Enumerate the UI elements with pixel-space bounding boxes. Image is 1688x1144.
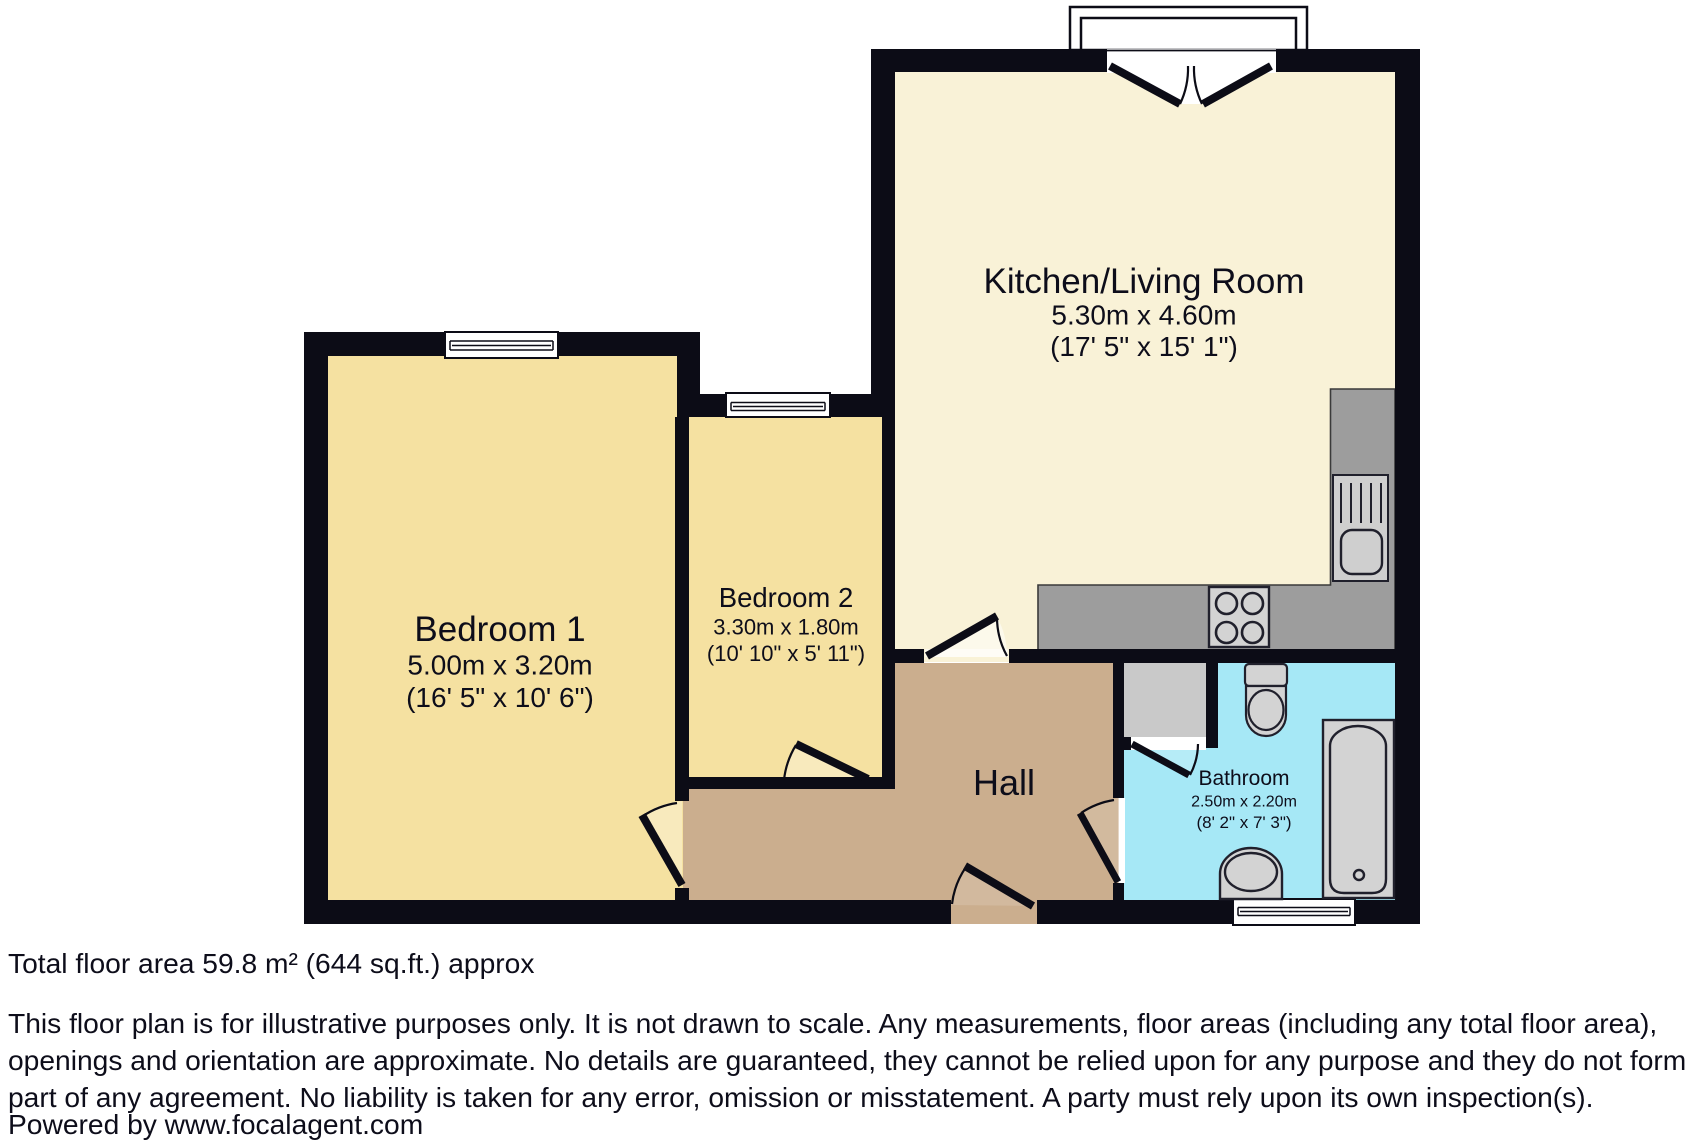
svg-text:5.00m x 3.20m: 5.00m x 3.20m xyxy=(407,650,592,681)
svg-text:Bedroom 2: Bedroom 2 xyxy=(719,582,854,613)
svg-text:3.30m x 1.80m: 3.30m x 1.80m xyxy=(713,615,859,640)
svg-text:2.50m x 2.20m: 2.50m x 2.20m xyxy=(1191,794,1297,811)
svg-text:Hall: Hall xyxy=(973,762,1035,803)
svg-text:Total floor area 59.8 m² (644: Total floor area 59.8 m² (644 sq.ft.) ap… xyxy=(8,947,534,979)
svg-text:Bedroom 1: Bedroom 1 xyxy=(414,610,585,649)
svg-text:openings and orientation are a: openings and orientation are approximate… xyxy=(8,1044,1686,1076)
svg-text:Bathroom: Bathroom xyxy=(1198,767,1289,790)
svg-text:(8' 2" x 7' 3"): (8' 2" x 7' 3") xyxy=(1196,813,1291,832)
svg-text:Powered by www.focalagent.com: Powered by www.focalagent.com xyxy=(8,1108,423,1140)
svg-text:(17' 5" x 15' 1"): (17' 5" x 15' 1") xyxy=(1050,331,1238,362)
svg-text:(10' 10" x 5' 11"): (10' 10" x 5' 11") xyxy=(707,641,865,666)
svg-text:(16' 5" x 10' 6"): (16' 5" x 10' 6") xyxy=(406,682,594,713)
svg-text:This floor plan is for illustr: This floor plan is for illustrative purp… xyxy=(8,1007,1657,1039)
svg-text:5.30m x 4.60m: 5.30m x 4.60m xyxy=(1051,300,1236,331)
svg-text:Kitchen/Living Room: Kitchen/Living Room xyxy=(984,262,1305,301)
